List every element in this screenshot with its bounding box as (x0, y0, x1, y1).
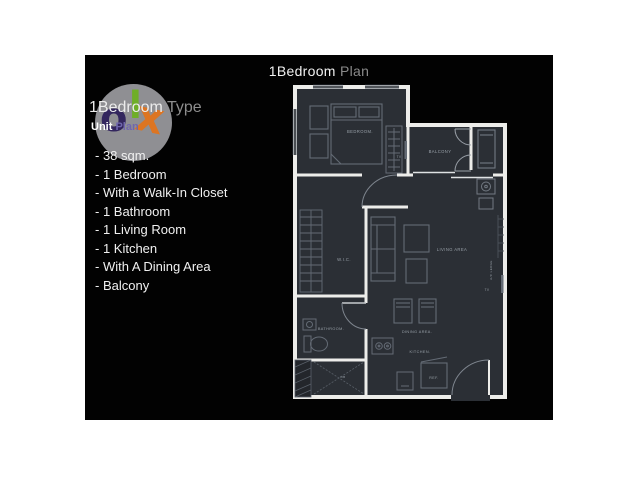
unit-type-primary: 1Bedroom (89, 99, 163, 116)
unit-plan-heading: Unit Plan (91, 121, 139, 133)
feature-kitchen: - 1 Kitchen (95, 240, 227, 259)
feature-bathroom: - 1 Bathroom (95, 203, 227, 222)
floor-plan-board: 1Bedroom Plan o l x 1Bedroom Type Unit P… (85, 55, 553, 420)
label-db: DB (341, 375, 346, 379)
label-balcony: BALCONY (429, 149, 452, 154)
label-tv-living: TV (485, 288, 490, 292)
label-living: LIVING AREA (437, 247, 467, 252)
label-ref: REF. (429, 376, 438, 380)
unit-plan-secondary: Plan (112, 121, 138, 133)
label-bedroom: BEDROOM. (347, 129, 373, 134)
feature-list: - 38 sqm. - 1 Bedroom - With a Walk-In C… (95, 147, 227, 295)
title-secondary: Plan (336, 63, 369, 79)
shaft-hatch-icon (295, 360, 311, 397)
page-title: 1Bedroom Plan (85, 63, 553, 79)
unit-plan-primary: Unit (91, 121, 112, 133)
label-dining: DINING AREA. (402, 330, 432, 334)
floor-plan-drawing: BEDROOM. BALCONY W.I.C. LIVING AREA BATH… (287, 79, 533, 413)
label-tv-bedroom: TV (397, 155, 402, 159)
feature-dining-area: - With A Dining Area (95, 258, 227, 277)
feature-area: - 38 sqm. (95, 147, 227, 166)
feature-balcony: - Balcony (95, 277, 227, 296)
tv-living-icon (501, 275, 504, 293)
tv-bedroom-icon (405, 141, 408, 159)
label-kitchen: KITCHEN. (410, 350, 431, 354)
label-ac-ledge: A/C LEDGE (489, 260, 493, 280)
feature-walkin-closet: - With a Walk-In Closet (95, 184, 227, 203)
feature-bedroom: - 1 Bedroom (95, 166, 227, 185)
unit-type-heading: 1Bedroom Type (89, 99, 202, 117)
unit-type-secondary: Type (163, 99, 202, 116)
label-bathroom: BATHROOM. (318, 327, 344, 331)
listing-image: 1Bedroom Plan o l x 1Bedroom Type Unit P… (0, 0, 640, 480)
label-wic: W.I.C. (337, 257, 351, 262)
feature-living-room: - 1 Living Room (95, 221, 227, 240)
title-primary: 1Bedroom (269, 63, 336, 79)
